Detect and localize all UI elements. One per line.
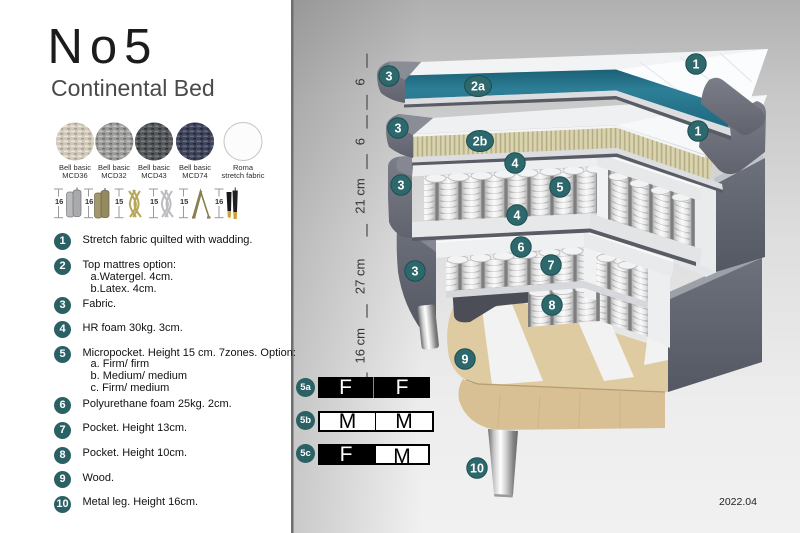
svg-text:16: 16 [215, 197, 223, 206]
svg-text:1: 1 [693, 58, 700, 72]
svg-text:4: 4 [514, 209, 521, 223]
svg-text:3: 3 [395, 122, 402, 136]
svg-text:1: 1 [695, 125, 702, 139]
svg-text:3: 3 [398, 179, 405, 193]
svg-text:2b: 2b [473, 135, 488, 149]
svg-text:15: 15 [150, 197, 158, 206]
svg-text:21 cm: 21 cm [352, 178, 367, 213]
svg-text:2a: 2a [471, 80, 486, 94]
svg-text:27 cm: 27 cm [352, 259, 367, 294]
svg-text:16: 16 [85, 197, 93, 206]
svg-text:15: 15 [180, 197, 188, 206]
svg-text:10: 10 [470, 462, 484, 476]
svg-text:5: 5 [557, 181, 564, 195]
svg-text:7: 7 [548, 259, 555, 273]
svg-text:15: 15 [115, 197, 123, 206]
svg-text:4: 4 [512, 157, 519, 171]
svg-text:6: 6 [518, 241, 525, 255]
svg-text:3: 3 [386, 70, 393, 84]
svg-text:16: 16 [55, 197, 63, 206]
svg-text:6: 6 [352, 138, 367, 145]
svg-text:6: 6 [352, 78, 367, 85]
svg-text:16 cm: 16 cm [352, 328, 367, 363]
svg-text:8: 8 [549, 299, 556, 313]
svg-text:9: 9 [462, 353, 469, 367]
svg-text:3: 3 [412, 265, 419, 279]
